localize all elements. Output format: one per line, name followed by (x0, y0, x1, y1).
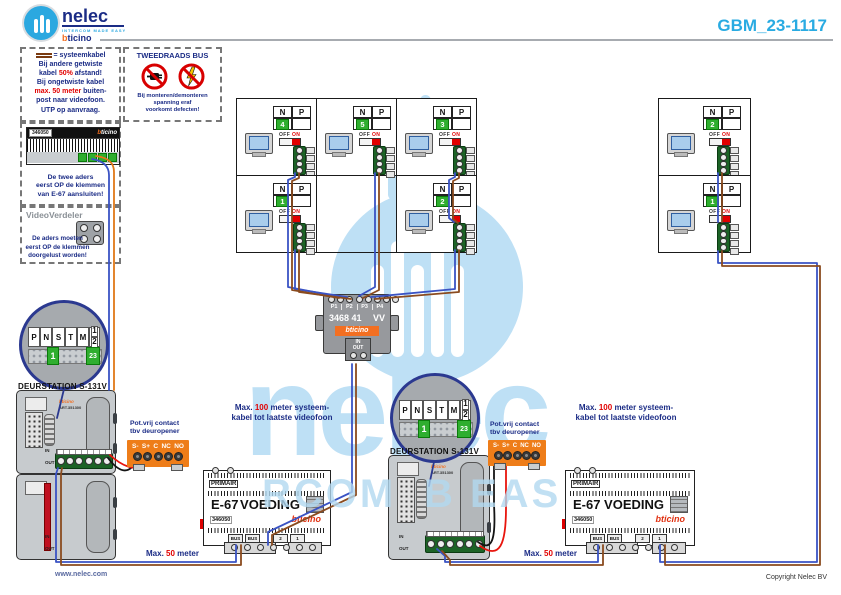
videophone-unit-r2: NP 2 OFF ON (658, 98, 751, 176)
contact-caption-2: Pot.vrij contacttbv deuropener (490, 421, 539, 437)
videophone-monitor-icon (405, 133, 433, 154)
terminal-labels (386, 147, 395, 178)
bus-terminal-block (293, 146, 306, 175)
door-station-1-title: DEURSTATION S-131V (18, 382, 107, 391)
address-number: 5 (356, 119, 369, 130)
psu-terminal-labels: BUSBUS 21 (228, 534, 305, 543)
videophone-unit-4: N P 4 OFF ON (236, 98, 317, 176)
address-table: N P 4 (273, 106, 311, 130)
hub-model: 3468 41 (329, 313, 362, 323)
videophone-monitor-icon (245, 210, 273, 231)
hub-vv: VV (373, 313, 385, 323)
bticino-logo: bticino (431, 464, 446, 469)
no-high-voltage-icon (178, 63, 205, 90)
address-number: 3 (436, 119, 449, 130)
psu-terminal-labels: BUSBUS 21 (590, 534, 667, 543)
videophone-unit-1: NP 1 OFF ON (236, 175, 317, 253)
np-header-p: P (292, 106, 311, 118)
psu-terminals (231, 544, 316, 551)
bus-terminal-block (453, 146, 466, 175)
terminal-labels (306, 224, 315, 255)
address-table: NP 1 (703, 183, 741, 207)
bus-terminal-strip (425, 535, 485, 553)
dip-value-2: 23 (86, 347, 100, 365)
terminal-green-row (27, 152, 119, 163)
bus-terminal-block (373, 146, 386, 175)
bus-note-title: TWEEDRAADS BUS (125, 51, 220, 60)
coil-icon (416, 479, 427, 519)
terminal-labels (466, 147, 475, 178)
dip-label-strip: PN ST M 12 (28, 327, 100, 347)
psu-model: E-67 (211, 497, 238, 512)
mounting-ear (390, 315, 399, 331)
terminal-strip-device: 346050 bticino (26, 127, 120, 165)
door-station-2-module: bticino ART.351300 IN OUT (388, 455, 490, 560)
dip-value: 1 (47, 347, 59, 365)
videophone-unit-r1: NP 1 OFF ON (658, 175, 751, 253)
terminal-labels (730, 224, 739, 255)
splice-device-note: 346050 bticino De twee aders eerst OP de… (20, 122, 121, 206)
dip-switch-icon (439, 215, 461, 223)
videophone-unit-3: NP 3 OFF ON (396, 98, 477, 176)
terminal-labels (306, 147, 315, 178)
psu-terminals (593, 544, 678, 551)
footer-url: www.nelec.com (55, 571, 107, 578)
hub-port-p1: P1 (327, 304, 342, 310)
primair-label: PRIMAIR (571, 480, 600, 488)
cable-legend-note: = systeemkabel Bij andere getwiste kabel… (20, 47, 121, 122)
brand-name: nelec (62, 6, 108, 27)
dip-switch-icon (709, 215, 731, 223)
max-50m-note-1: Max. 50 meter (146, 549, 199, 559)
bus-terminal-block (717, 223, 730, 252)
address-table: NP 2 (433, 183, 471, 207)
verdeler-title: VideoVerdeler (22, 208, 119, 220)
contact-caption-1: Pot.vrij contacttbv deuropener (130, 420, 179, 436)
door-station-2-title: DEURSTATION S-131V (390, 447, 479, 456)
dip-switch-icon (359, 138, 381, 146)
address-table: NP 2 (703, 106, 741, 130)
door-station-1-module-a: bticino ART.351300 IN OUT (16, 390, 116, 474)
wiring-diagram-page: nelec nelec INTERCOM MADE EASY bticino G… (0, 0, 841, 595)
system-cable-icon (36, 53, 52, 58)
video-verdeler-note: VideoVerdeler De aders moeten eerst OP d… (20, 206, 121, 264)
videophone-monitor-icon (667, 133, 695, 154)
videophone-monitor-icon (405, 210, 433, 231)
header-divider (100, 39, 833, 41)
front-panel (86, 481, 110, 553)
relay-contact-block-2: S-S+ CNC NO (488, 440, 546, 466)
device-article-number: 346050 (29, 129, 52, 137)
contact-screws (127, 450, 189, 463)
address-number: 1 (276, 196, 289, 207)
bus-terminal-block (293, 223, 306, 252)
hub-port-p4: P4 (373, 304, 387, 310)
psu-model: E-67 (573, 497, 600, 512)
psu-block (306, 496, 324, 513)
bticino-logo: bticino (656, 514, 686, 524)
hub-port-p3: P3 (358, 304, 373, 310)
brand-rule (62, 25, 124, 27)
address-number: 2 (436, 196, 449, 207)
dip-value: 1 (418, 420, 430, 438)
dip-switch-icon (439, 138, 461, 146)
primair-label: PRIMAIR (209, 480, 238, 488)
dip-switch-detail-1: PN ST M 12 1 23 (19, 300, 109, 390)
dip-switch-icon (279, 138, 301, 146)
address-number: 2 (706, 119, 719, 130)
psu-block (670, 496, 688, 513)
coil-icon (44, 414, 55, 446)
dip-label-strip: PN ST M 12 (399, 400, 471, 420)
bticino-logo: bticino (335, 326, 379, 336)
videophone-monitor-icon (245, 133, 273, 154)
power-supply-2: PRIMAIR E-67 VOEDING 346050 bticino BUSB… (565, 470, 695, 546)
power-supply-1: PRIMAIR E-67 VOEDING 346050 bticino BUSB… (203, 470, 331, 546)
bticino-logo: bticino (59, 399, 74, 404)
max-100m-note-1: Max. 100 meter systeem- kabel tot laatst… (222, 403, 342, 423)
psu-type: VOEDING (240, 497, 300, 512)
module-article: ART.351300 (59, 405, 81, 410)
two-wire-bus-note: TWEEDRAADS BUS Bij monteren/demonteren s… (123, 47, 222, 122)
nelec-logo-icon (24, 6, 58, 40)
address-number: 1 (706, 196, 719, 207)
legend-label: = systeemkabel (54, 52, 106, 59)
keypad-matrix (397, 477, 415, 523)
dip-switch-icon (709, 138, 731, 146)
psu-type: VOEDING (604, 497, 664, 512)
door-station-1-module-b: IN OUT (16, 474, 116, 560)
bticino-logo: bticino (292, 514, 322, 524)
videophone-monitor-icon (325, 133, 353, 154)
terminal-labels (730, 147, 739, 178)
psu-article: 346050 (572, 516, 594, 524)
hub-in-out-tab: INOUT (345, 338, 371, 361)
max-50m-note-2: Max. 50 meter (524, 549, 577, 559)
bticino-logo: bticino (97, 130, 117, 136)
dip-switch-icon (279, 215, 301, 223)
hub-port-p2: P2 (342, 304, 357, 310)
address-table: NP 3 (433, 106, 471, 130)
bticino-logo: bticino (62, 33, 92, 43)
contact-screws (488, 449, 546, 462)
videophone-monitor-icon (667, 210, 695, 231)
video-distributor-346841: P1 P2 P3 P4 3468 41 VV bticino INOUT (323, 294, 391, 354)
address-table: NP 5 (353, 106, 391, 130)
psu-article: 346050 (210, 516, 232, 524)
address-number: 4 (276, 119, 289, 130)
dip-value-2: 23 (457, 420, 471, 438)
videophone-unit-2: NP 2 OFF ON (396, 175, 477, 253)
terminal-labels (466, 224, 475, 255)
module-article: ART.351300 (431, 470, 453, 475)
hub-terminals (328, 296, 399, 303)
videophone-unit-5: NP 5 OFF ON (316, 98, 397, 176)
keypad-matrix (25, 412, 43, 448)
mounting-ear (315, 315, 324, 331)
no-mains-plug-icon (141, 63, 168, 90)
relay-contact-block-1: S-S+ CNC NO (127, 440, 189, 467)
footer-copyright: Copyright Nelec BV (766, 574, 827, 581)
bus-terminal-strip (55, 453, 113, 469)
red-wire-bar (44, 483, 51, 551)
max-100m-note-2: Max. 100 meter systeem- kabel tot laatst… (566, 403, 686, 423)
address-table: NP 1 (273, 183, 311, 207)
np-header-n: N (273, 106, 292, 118)
terminal-row (27, 138, 119, 152)
document-code: GBM_23-1117 (717, 16, 827, 36)
bus-terminal-block (453, 223, 466, 252)
bus-terminal-block (717, 146, 730, 175)
